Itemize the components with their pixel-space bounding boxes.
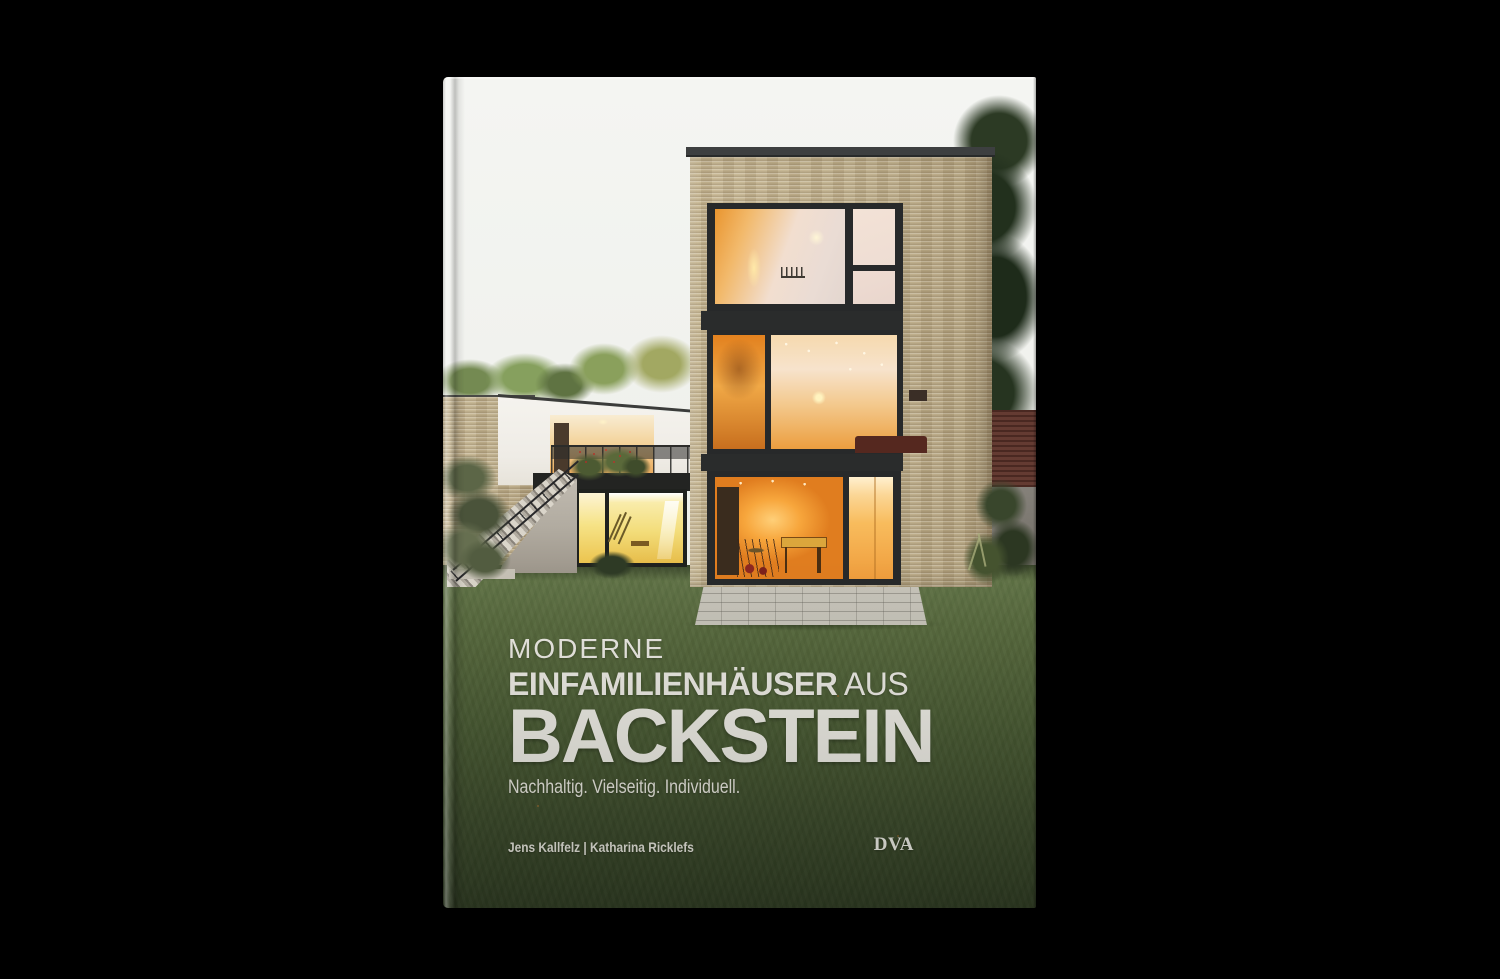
page-background: MODERNE EINFAMILIENHÄUSER AUS BACKSTEIN … [0,0,1500,979]
cover-text-block: MODERNE EINFAMILIENHÄUSER AUS BACKSTEIN … [508,77,1008,908]
right-edge-shadow [1033,77,1036,908]
title-line-backstein: BACKSTEIN [508,699,933,775]
spine-groove [443,77,465,908]
subtitle: Nachhaltig. Vielseitig. Individuell. [508,777,740,799]
cover-photo: MODERNE EINFAMILIENHÄUSER AUS BACKSTEIN … [443,77,1036,908]
shrub-blob [459,539,511,581]
top-edge-highlight [443,77,1036,79]
title-line-moderne: MODERNE [508,633,665,665]
authors: Jens Kallfelz | Katharina Ricklefs [508,839,694,855]
book-cover: MODERNE EINFAMILIENHÄUSER AUS BACKSTEIN … [443,77,1036,908]
publisher-logo: DVA [874,834,914,856]
